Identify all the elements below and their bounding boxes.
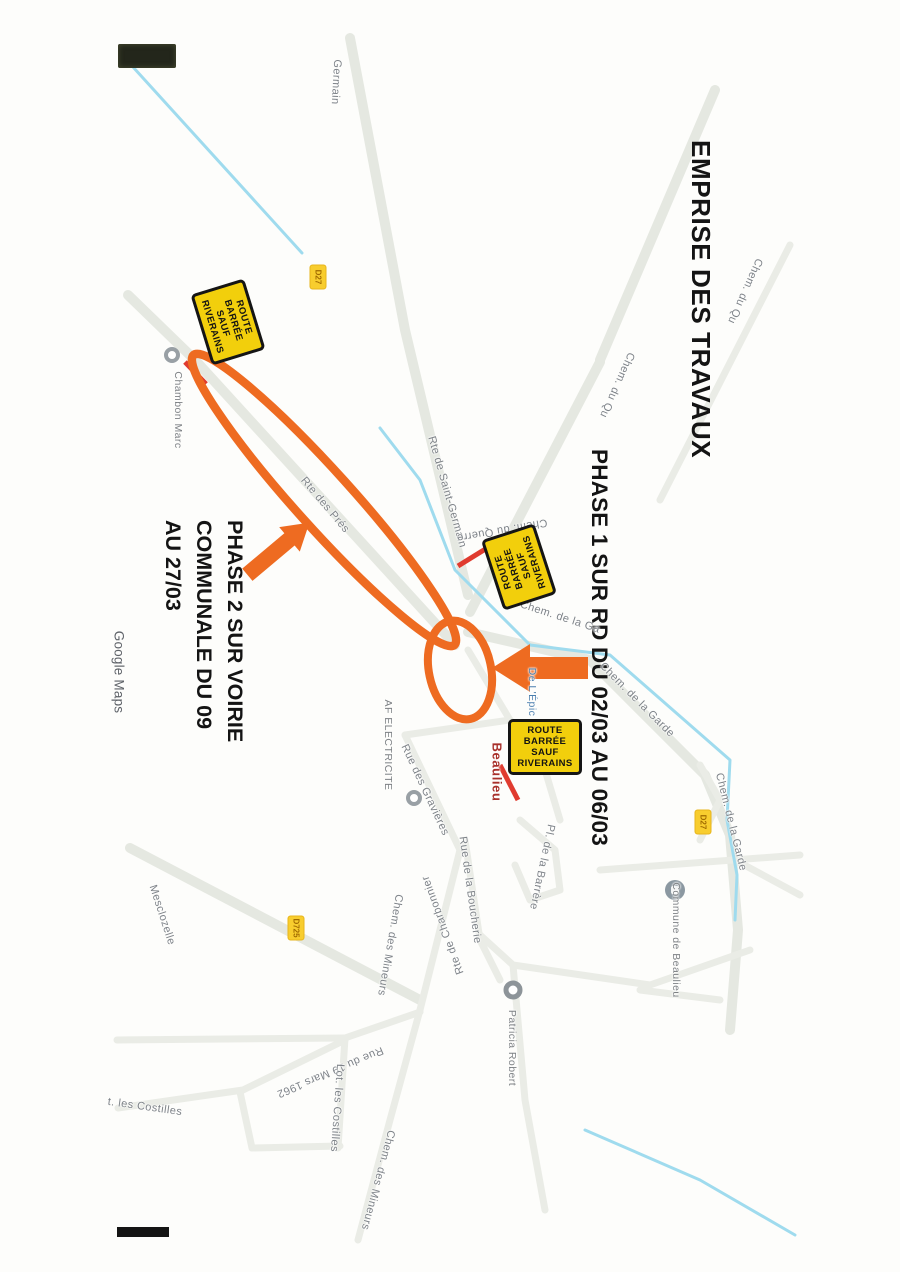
route-badge: D725 — [288, 916, 305, 941]
phase2-caption: PHASE 2 SUR VOIRIE COMMUNALE DU 09 AU 27… — [157, 520, 250, 820]
poi-label: Commune de Beaulieu — [670, 882, 682, 997]
poi-label: Chambon Marc — [172, 371, 184, 448]
phase2-line3: AU 27/03 — [157, 520, 188, 820]
street-label: Germain — [329, 59, 343, 105]
scan-artifact-top — [118, 44, 176, 68]
phase1-caption: PHASE 1 SUR RD DU 02/03 AU 06/03 — [586, 449, 612, 846]
phase2-line1: PHASE 2 SUR VOIRIE — [219, 520, 250, 820]
poi-marker-icon — [164, 347, 180, 363]
route-barree-sign-line: ROUTE — [527, 725, 562, 736]
phase1-junction-ellipse — [419, 615, 500, 726]
route-barree-sign-line: RIVERAINS — [517, 758, 572, 769]
route-barree-sign-line: BARRÉE — [524, 736, 567, 747]
scan-artifact-bottom — [117, 1227, 169, 1237]
route-badge: D27 — [695, 810, 712, 835]
rotated-map-canvas: EMPRISE DES TRAVAUX PHASE 1 SUR RD DU 02… — [0, 0, 900, 1272]
map-graphics — [0, 0, 900, 1272]
route-barree-sign-line: SAUF — [531, 747, 558, 758]
scanned-map-page: EMPRISE DES TRAVAUX PHASE 1 SUR RD DU 02… — [0, 0, 900, 1272]
poi-marker-icon — [504, 981, 523, 1000]
poi-label: AF ELECTRICITE — [382, 700, 394, 791]
route-badge: D27 — [310, 265, 327, 290]
route-barree-sign: ROUTEBARRÉESAUFRIVERAINS — [508, 719, 582, 775]
phase2-line2: COMMUNALE DU 09 — [188, 520, 219, 820]
poi-label: Patricia Robert — [506, 1010, 518, 1086]
credit-label: Google Maps — [112, 631, 127, 714]
business-label: De L'Épic — [526, 668, 538, 717]
locality-label: Beaulieu — [490, 743, 505, 802]
emprise-title: EMPRISE DES TRAVAUX — [685, 140, 716, 458]
